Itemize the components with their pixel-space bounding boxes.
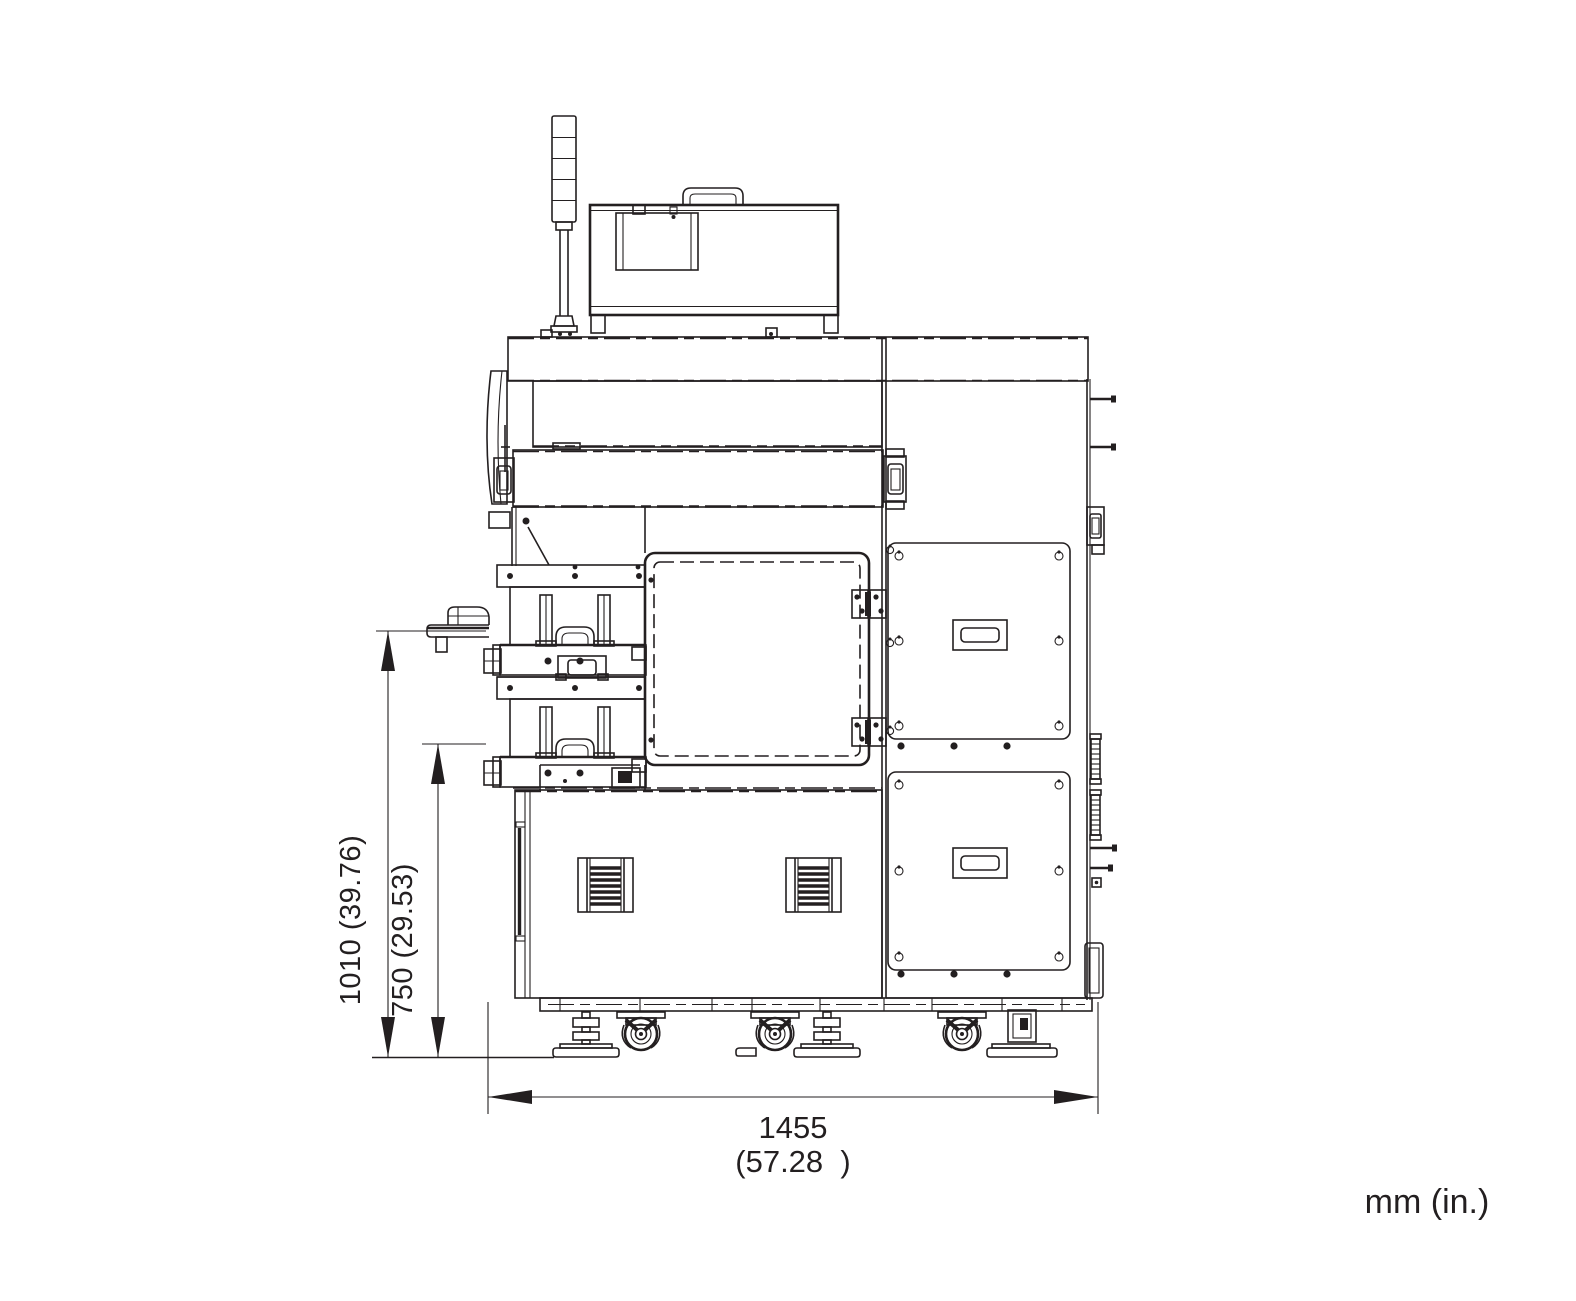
vent-left bbox=[578, 858, 633, 912]
leveling-foot-right bbox=[987, 1010, 1057, 1057]
enclosure-handle bbox=[683, 188, 743, 205]
top-enclosure bbox=[590, 188, 838, 333]
dim-height-table: 750 (29.53) bbox=[387, 744, 445, 1057]
dimension-drawing-canvas: 1010 (39.76) 750 (29.53) 1455 (57.28 ) m… bbox=[0, 0, 1576, 1301]
units-note: mm (in.) bbox=[1365, 1183, 1490, 1221]
right-lower-panel bbox=[888, 772, 1070, 970]
vent-right bbox=[786, 858, 841, 912]
left-upper-structure bbox=[487, 371, 906, 569]
right-latch bbox=[884, 449, 906, 509]
right-cabinet bbox=[888, 543, 1070, 978]
base-rail bbox=[540, 998, 1092, 1011]
right-upper-panel bbox=[888, 543, 1070, 739]
side-table-arm bbox=[427, 607, 489, 652]
left-latch bbox=[494, 458, 514, 502]
dim-label-width-mm: 1455 bbox=[759, 1110, 828, 1145]
leveling-foot-middle bbox=[794, 1012, 860, 1057]
caster-middle bbox=[736, 1012, 799, 1056]
dimension-annotations: 1010 (39.76) 750 (29.53) 1455 (57.28 ) bbox=[335, 631, 1098, 1179]
lower-cabinet bbox=[515, 790, 882, 998]
terminal-strip-b bbox=[1090, 790, 1101, 840]
machine-top-band bbox=[508, 328, 1088, 381]
dim-label-width-in: (57.28 ) bbox=[735, 1144, 850, 1179]
signal-tower bbox=[551, 116, 577, 332]
caster-right bbox=[938, 1012, 986, 1050]
center-door bbox=[645, 553, 886, 765]
tray-module-upper bbox=[484, 565, 646, 677]
tray-module-lower bbox=[484, 677, 646, 787]
enclosure-window bbox=[616, 213, 698, 270]
machine-elevation-svg: 1010 (39.76) 750 (29.53) 1455 (57.28 ) m… bbox=[0, 0, 1576, 1301]
dim-height-overall: 1010 (39.76) bbox=[335, 631, 395, 1057]
dim-label-height-overall: 1010 (39.76) bbox=[335, 835, 367, 1005]
dim-label-height-table: 750 (29.53) bbox=[387, 863, 419, 1017]
terminal-strip-a bbox=[1090, 734, 1101, 784]
caster-left bbox=[617, 1012, 665, 1050]
door-hinge-top bbox=[852, 590, 886, 618]
leveling-foot-left bbox=[553, 1012, 619, 1057]
door-hinge-bottom bbox=[852, 718, 886, 746]
body-divider bbox=[882, 379, 1090, 1000]
